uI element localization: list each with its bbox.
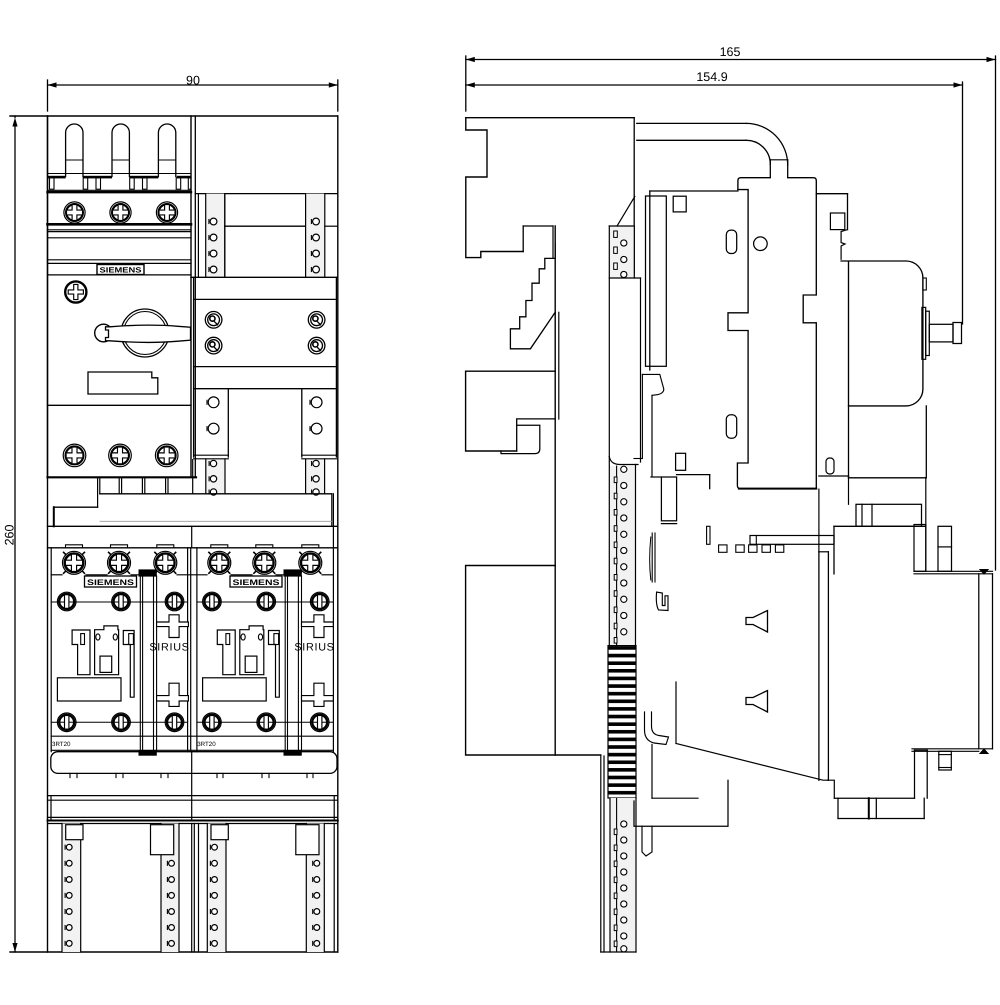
svg-text:SIRIUS: SIRIUS bbox=[149, 642, 189, 654]
svg-text:90: 90 bbox=[186, 73, 200, 87]
svg-text:165: 165 bbox=[720, 45, 741, 59]
svg-text:SIEMENS: SIEMENS bbox=[87, 578, 135, 587]
svg-text:3RT20: 3RT20 bbox=[197, 741, 216, 748]
svg-text:154.9: 154.9 bbox=[696, 70, 727, 84]
svg-text:3RT20: 3RT20 bbox=[52, 741, 71, 748]
svg-text:SIEMENS: SIEMENS bbox=[233, 578, 281, 587]
svg-text:SIRIUS: SIRIUS bbox=[294, 642, 334, 654]
svg-text:SIEMENS: SIEMENS bbox=[100, 266, 142, 275]
svg-text:260: 260 bbox=[3, 525, 17, 546]
